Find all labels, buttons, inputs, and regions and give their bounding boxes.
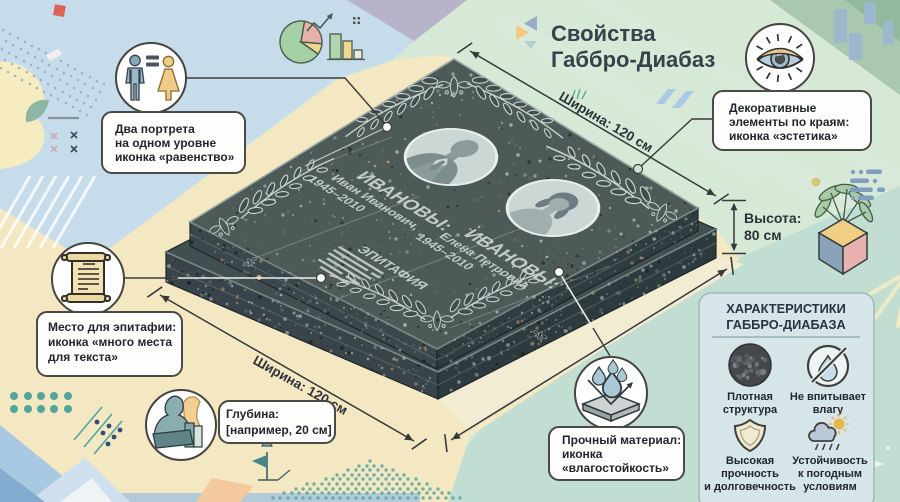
svg-text:ХАРАКТЕРИСТИКИ: ХАРАКТЕРИСТИКИ [726,301,846,316]
svg-text:Декоративные: Декоративные [729,101,817,115]
svg-text:прочность: прочность [721,468,779,480]
svg-text:ГАББРО-ДИАБАЗА: ГАББРО-ДИАБАЗА [726,317,845,332]
svg-text:структура: структура [723,404,778,416]
svg-text:[например, 20 см]: [например, 20 см] [226,423,332,437]
svg-text:Не впитывает: Не впитывает [790,391,867,403]
svg-text:Высокая: Высокая [726,455,774,467]
svg-text:и долговечность: и долговечность [704,481,796,493]
svg-text:элементы по краям:: элементы по краям: [729,115,849,129]
svg-text:Глубина:: Глубина: [226,407,279,421]
svg-text:«влагостойкость»: «влагостойкость» [562,461,669,475]
svg-text:Высота:: Высота: [744,210,801,226]
svg-text:Устойчивость: Устойчивость [792,455,868,467]
svg-text:условиям: условиям [803,481,857,493]
svg-text:Прочный материал:: Прочный материал: [562,433,681,447]
svg-text:Два портрета: Два портрета [115,122,195,136]
svg-text:к погодным: к погодным [798,468,862,480]
svg-text:иконка «равенство»: иконка «равенство» [115,150,235,164]
svg-text:Габбро-Диабаз: Габбро-Диабаз [551,47,715,72]
svg-text:иконка: иконка [562,447,603,461]
svg-text:Плотная: Плотная [727,391,773,403]
svg-text:на одном уровне: на одном уровне [115,136,216,150]
svg-text:Свойства: Свойства [551,21,656,46]
svg-text:для текста»: для текста» [48,350,118,364]
svg-text:иконка «много места: иконка «много места [48,335,172,349]
svg-text:80 см: 80 см [744,227,782,243]
svg-text:Место для эпитафии:: Место для эпитафии: [48,320,176,334]
svg-text:иконка «эстетика»: иконка «эстетика» [729,129,838,143]
